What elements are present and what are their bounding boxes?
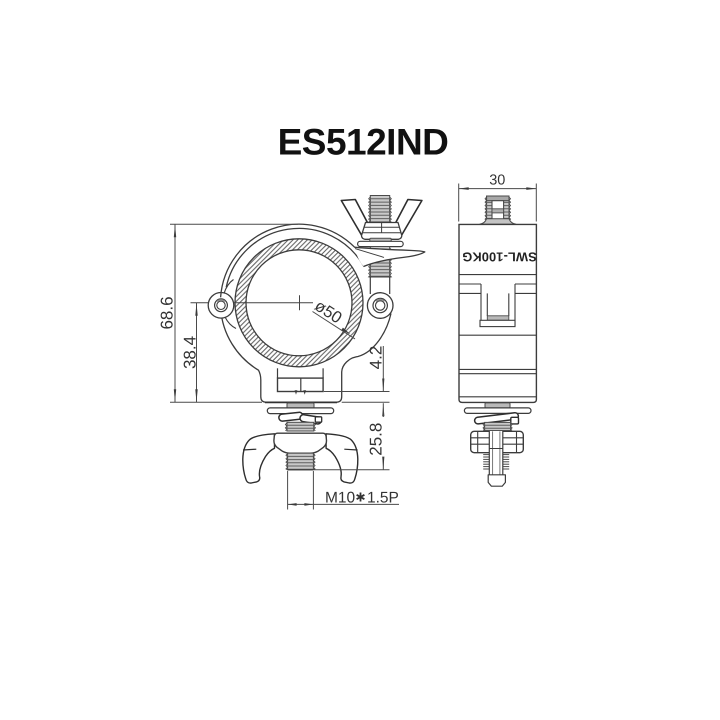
svg-text:1.5P: 1.5P	[367, 490, 399, 507]
svg-text:SWL-100KG: SWL-100KG	[462, 250, 537, 265]
svg-text:ES512IND: ES512IND	[278, 122, 449, 163]
svg-text:68.6: 68.6	[158, 296, 177, 329]
svg-text:30: 30	[489, 173, 505, 189]
svg-text:38.4: 38.4	[180, 336, 199, 369]
svg-text:4.2: 4.2	[366, 346, 385, 370]
svg-text:25.8: 25.8	[367, 423, 386, 456]
svg-text:M10: M10	[325, 490, 356, 507]
